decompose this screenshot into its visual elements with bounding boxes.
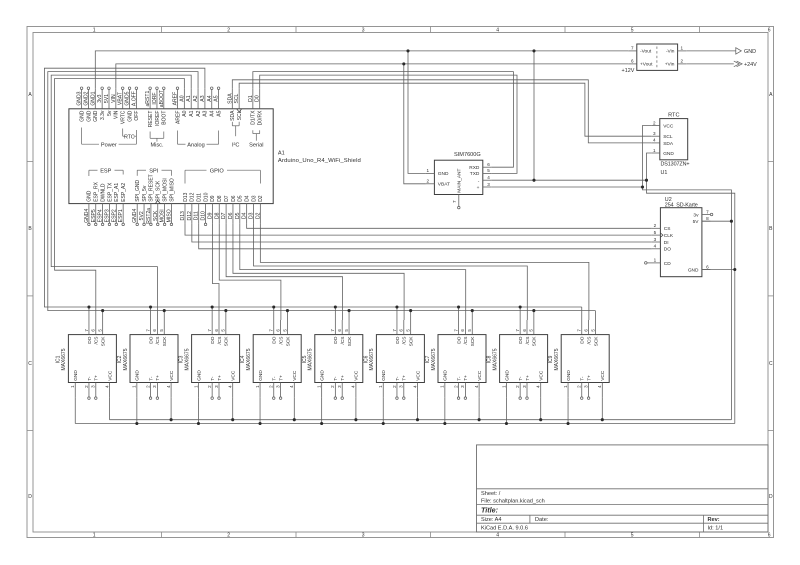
svg-text:-Vout: -Vout: [640, 49, 652, 55]
svg-text:GND4: GND4: [84, 209, 90, 223]
svg-text:/CS: /CS: [463, 337, 469, 345]
svg-text:T-: T-: [333, 376, 339, 381]
svg-text:D0/RX: D0/RX: [258, 110, 264, 125]
svg-text:C: C: [28, 361, 32, 367]
svg-text:MAX6675: MAX6675: [431, 348, 437, 370]
svg-text:/CS: /CS: [586, 337, 592, 345]
svg-text:A2: A2: [196, 110, 202, 116]
svg-text:D12: D12: [187, 211, 193, 221]
svg-text:T-: T-: [580, 376, 586, 381]
svg-text:Title:: Title:: [481, 505, 499, 514]
svg-text:3.3v: 3.3v: [100, 110, 106, 120]
svg-text:Rev:: Rev:: [708, 517, 720, 523]
svg-text:A3: A3: [203, 110, 209, 116]
svg-text:VCC: VCC: [169, 370, 175, 381]
svg-text:2: 2: [227, 533, 230, 539]
svg-text:SCL: SCL: [237, 110, 243, 120]
svg-text:D: D: [28, 494, 32, 500]
svg-text:SPI_5v: SPI_5v: [142, 185, 148, 202]
svg-text:DO: DO: [210, 336, 216, 343]
svg-text:Size: A4: Size: A4: [481, 517, 502, 523]
svg-text:8: 8: [706, 216, 709, 221]
svg-text:RTC: RTC: [124, 134, 135, 140]
svg-text:GND: GND: [93, 110, 99, 122]
svg-text:T+: T+: [463, 375, 469, 381]
svg-text:MAX6675: MAX6675: [492, 348, 498, 370]
svg-text:SCK: SCK: [100, 336, 106, 347]
svg-text:GND4: GND4: [132, 209, 138, 223]
svg-text:BOOT: BOOT: [162, 111, 168, 125]
svg-text:SCK: SCK: [593, 336, 599, 347]
svg-text:SCK: SCK: [285, 336, 291, 347]
svg-text:GND: GND: [381, 370, 387, 381]
svg-text:ESP5: ESP5: [91, 209, 97, 222]
svg-text:D2: D2: [255, 212, 261, 219]
svg-text:+12V: +12V: [622, 68, 635, 74]
svg-text:AREF: AREF: [175, 111, 181, 124]
svg-text:TXD: TXD: [470, 171, 480, 177]
svg-text:Id: 1/1: Id: 1/1: [708, 525, 724, 531]
svg-text:SPI_GND: SPI_GND: [135, 179, 141, 201]
svg-text:DO: DO: [148, 336, 154, 343]
svg-text:D12: D12: [190, 192, 196, 201]
svg-text:GND: GND: [663, 151, 674, 157]
svg-text:DO: DO: [272, 336, 278, 343]
svg-text:5: 5: [487, 168, 490, 173]
svg-text:3: 3: [654, 237, 657, 242]
svg-text:SCL: SCL: [663, 134, 673, 140]
svg-text:DI: DI: [664, 240, 669, 246]
svg-text:RTC: RTC: [668, 112, 679, 118]
svg-text:aBOOT: aBOOT: [159, 90, 165, 107]
svg-text:6: 6: [706, 264, 709, 269]
svg-text:3v: 3v: [693, 212, 699, 218]
svg-text:DO: DO: [580, 336, 586, 343]
svg-text:A.OFF: A.OFF: [131, 91, 137, 106]
svg-text:KiCad E.D.A. 9.0.6: KiCad E.D.A. 9.0.6: [481, 525, 528, 531]
svg-text:GND: GND: [86, 110, 92, 122]
svg-text:D9: D9: [207, 212, 213, 219]
svg-text:ESP_RX: ESP_RX: [94, 181, 100, 201]
svg-text:1: 1: [93, 27, 96, 33]
svg-text:2: 2: [654, 223, 657, 228]
svg-text:A2: A2: [193, 95, 199, 101]
svg-text:T+: T+: [586, 375, 592, 381]
svg-text:T+: T+: [217, 375, 223, 381]
svg-text:VCC: VCC: [354, 370, 360, 381]
svg-text:GND: GND: [73, 370, 79, 381]
svg-text:D2: D2: [258, 195, 264, 202]
svg-text:I²C: I²C: [232, 142, 239, 148]
svg-text:CLK: CLK: [664, 233, 674, 239]
svg-text:5V1: 5V1: [104, 94, 110, 103]
svg-text:7: 7: [706, 209, 709, 214]
svg-text:DO: DO: [333, 336, 339, 343]
svg-text:D3: D3: [249, 212, 255, 219]
svg-text:SDA: SDA: [230, 110, 236, 121]
svg-text:5V: 5V: [693, 219, 700, 225]
svg-text:VIN: VIN: [114, 110, 120, 119]
svg-text:MAX6675: MAX6675: [246, 348, 252, 370]
svg-text:D3: D3: [251, 195, 257, 202]
svg-text:T+: T+: [402, 375, 408, 381]
svg-text:T+: T+: [340, 375, 346, 381]
svg-text:SPI: SPI: [149, 168, 158, 174]
svg-text:/CS: /CS: [94, 337, 100, 345]
svg-text:254 SD-Karte: 254 SD-Karte: [665, 203, 698, 209]
svg-text:GND: GND: [688, 267, 699, 273]
svg-text:VCC: VCC: [539, 370, 545, 381]
svg-text:SDA: SDA: [227, 93, 233, 104]
svg-text:+24V: +24V: [744, 62, 757, 68]
svg-text:5V2: 5V2: [139, 211, 145, 220]
svg-text:6: 6: [631, 59, 634, 64]
svg-text:ESP1: ESP1: [118, 209, 124, 222]
svg-text:D8: D8: [217, 195, 223, 202]
svg-text:T+: T+: [155, 375, 161, 381]
svg-text:D5: D5: [235, 212, 241, 219]
svg-text:1: 1: [654, 258, 657, 263]
svg-text:D13: D13: [183, 192, 189, 201]
svg-text:SPI_MOSI: SPI_MOSI: [162, 178, 168, 202]
svg-text:DO: DO: [395, 336, 401, 343]
svg-text:GND: GND: [196, 370, 202, 381]
svg-text:GND: GND: [258, 370, 264, 381]
svg-text:T+: T+: [525, 375, 531, 381]
svg-text:SCK: SCK: [470, 336, 476, 347]
svg-text:+Vin: +Vin: [665, 62, 675, 68]
svg-text:T-: T-: [272, 376, 278, 381]
svg-text:SCK: SCK: [408, 336, 414, 347]
svg-text:4: 4: [653, 138, 656, 143]
svg-text:7: 7: [631, 46, 634, 51]
svg-text:SDA: SDA: [663, 141, 674, 147]
svg-text:SIM7600G: SIM7600G: [454, 152, 481, 158]
svg-text:2: 2: [653, 120, 656, 125]
svg-text:3: 3: [362, 27, 365, 33]
svg-text:T-: T-: [87, 376, 93, 381]
svg-text:T+: T+: [278, 375, 284, 381]
svg-text:GND2: GND2: [83, 91, 89, 105]
svg-text:RST2a: RST2a: [146, 208, 152, 224]
svg-text:D: D: [769, 494, 773, 500]
svg-text:5v: 5v: [107, 110, 113, 116]
svg-text:4: 4: [487, 175, 490, 180]
svg-text:MAX6675: MAX6675: [61, 348, 67, 370]
svg-text:Arduino_Uno_R4_WiFi_Shield: Arduino_Uno_R4_WiFi_Shield: [278, 158, 361, 164]
svg-text:Date:: Date:: [535, 517, 549, 523]
svg-text:GND: GND: [319, 370, 325, 381]
svg-text:GND3: GND3: [77, 91, 83, 105]
svg-text:IORF: IORF: [152, 93, 158, 105]
svg-text:/CS: /CS: [155, 337, 161, 345]
svg-text:GND: GND: [87, 190, 93, 202]
svg-text:D11: D11: [197, 193, 203, 202]
svg-text:A3: A3: [200, 95, 206, 101]
svg-text:VIN: VIN: [111, 94, 117, 103]
svg-text:1: 1: [93, 533, 96, 539]
svg-text:T-: T-: [148, 376, 154, 381]
svg-text:VCC: VCC: [231, 370, 237, 381]
svg-text:AREF: AREF: [173, 92, 179, 106]
svg-text:GND: GND: [566, 370, 572, 381]
svg-text:D6: D6: [228, 212, 234, 219]
svg-text:5: 5: [631, 533, 634, 539]
svg-text:1: 1: [653, 148, 656, 153]
svg-text:D10: D10: [201, 211, 207, 221]
svg-text:/CS: /CS: [402, 337, 408, 345]
svg-text:SPI_RESET: SPI_RESET: [149, 174, 155, 202]
svg-text:1: 1: [426, 168, 429, 173]
svg-text:D9: D9: [210, 195, 216, 202]
svg-text:D4: D4: [242, 212, 248, 219]
svg-text:ESP3: ESP3: [104, 209, 110, 222]
svg-text:Analog: Analog: [187, 142, 204, 148]
svg-text:SCK: SCK: [347, 336, 353, 347]
svg-text:3: 3: [653, 131, 656, 136]
svg-text:aRST1: aRST1: [145, 91, 151, 107]
svg-text:DO: DO: [664, 247, 671, 253]
svg-text:4: 4: [496, 533, 499, 539]
svg-text:File: schaltplan.kicad_sch: File: schaltplan.kicad_sch: [481, 499, 545, 505]
svg-text:CD: CD: [664, 261, 671, 267]
svg-text:GND: GND: [135, 370, 141, 381]
svg-text:MAIN_ANT: MAIN_ANT: [457, 168, 463, 192]
svg-text:VCC: VCC: [292, 370, 298, 381]
svg-text:D4: D4: [244, 195, 250, 202]
svg-text:T-: T-: [210, 376, 216, 381]
svg-text:1: 1: [681, 46, 684, 51]
svg-text:VCC: VCC: [415, 370, 421, 381]
svg-text:U1: U1: [661, 170, 668, 176]
svg-text:ESP_A1: ESP_A1: [114, 183, 120, 202]
svg-text:SCL: SCL: [234, 93, 240, 103]
svg-text:+Vout: +Vout: [640, 62, 653, 68]
svg-text:/CS: /CS: [525, 337, 531, 345]
svg-text:IOREF: IOREF: [155, 111, 161, 126]
svg-text:ESP_TX: ESP_TX: [107, 182, 113, 202]
svg-text:DS1307ZN+: DS1307ZN+: [661, 162, 690, 168]
svg-text:A0: A0: [182, 110, 188, 116]
svg-text:VBAT: VBAT: [118, 92, 124, 105]
svg-text:3v3: 3v3: [97, 94, 103, 102]
svg-text:SPI_SCK: SPI_SCK: [156, 180, 162, 202]
svg-text:D6: D6: [231, 195, 237, 202]
svg-text:T-: T-: [456, 376, 462, 381]
svg-text:VRTC: VRTC: [121, 110, 127, 124]
svg-text:DO: DO: [456, 336, 462, 343]
svg-text:4: 4: [654, 244, 657, 249]
svg-text:D13: D13: [180, 211, 186, 221]
svg-text:SPI_MISO: SPI_MISO: [169, 178, 175, 202]
svg-text:GND5: GND5: [125, 91, 131, 105]
svg-text:7: 7: [452, 200, 457, 203]
svg-text:D11: D11: [194, 211, 200, 220]
svg-text:VBAT: VBAT: [438, 182, 450, 188]
svg-text:A1: A1: [186, 95, 192, 101]
svg-text:ESP_A2: ESP_A2: [121, 183, 127, 202]
svg-text:DO: DO: [518, 336, 524, 343]
svg-text:2: 2: [426, 179, 429, 184]
svg-text:T-: T-: [395, 376, 401, 381]
svg-text:+: +: [477, 186, 480, 191]
svg-text:Sheet: /: Sheet: /: [481, 491, 501, 497]
svg-text:MAX6675: MAX6675: [123, 348, 129, 370]
svg-text:Serial: Serial: [249, 142, 263, 148]
svg-text:3: 3: [487, 182, 490, 187]
svg-text:GND: GND: [443, 370, 449, 381]
svg-text:DWNLD: DWNLD: [100, 183, 106, 202]
svg-text:A5: A5: [216, 110, 222, 116]
svg-text:3: 3: [362, 533, 365, 539]
svg-text:A4: A4: [207, 95, 213, 101]
svg-text:5: 5: [631, 27, 634, 33]
svg-text:6: 6: [768, 27, 771, 33]
svg-text:RESET: RESET: [148, 111, 154, 128]
svg-text:MISO: MISO: [166, 209, 172, 222]
svg-text:C: C: [769, 361, 773, 367]
svg-text:MAX6675: MAX6675: [554, 348, 560, 370]
svg-text:D7: D7: [221, 212, 227, 219]
svg-text:MAX6675: MAX6675: [184, 348, 190, 370]
svg-text:2: 2: [227, 27, 230, 33]
svg-text:/CS: /CS: [340, 337, 346, 345]
svg-text:Power: Power: [101, 142, 117, 148]
svg-text:DO: DO: [87, 336, 93, 343]
svg-text:A4: A4: [210, 110, 216, 116]
svg-text:SCK: SCK: [153, 210, 159, 221]
svg-text:VCC: VCC: [600, 370, 606, 381]
svg-text:-Vin: -Vin: [666, 49, 675, 55]
svg-text:D10: D10: [203, 192, 209, 201]
svg-text:4: 4: [496, 27, 499, 33]
svg-text:D5: D5: [238, 195, 244, 202]
svg-text:GND: GND: [79, 110, 85, 122]
svg-text:6: 6: [487, 162, 490, 167]
svg-text:D1/TX: D1/TX: [251, 110, 257, 125]
svg-text:GPIO: GPIO: [210, 168, 225, 174]
svg-text:ESP2: ESP2: [111, 209, 117, 222]
svg-text:VCC: VCC: [107, 370, 113, 381]
svg-text:MOSI: MOSI: [160, 209, 166, 222]
svg-text:6: 6: [768, 533, 771, 539]
svg-text:D1: D1: [248, 95, 254, 102]
svg-text:A1: A1: [278, 150, 285, 156]
svg-text:GND: GND: [127, 110, 133, 122]
svg-text:T-: T-: [518, 376, 524, 381]
svg-text:A1: A1: [189, 110, 195, 116]
svg-text:/CS: /CS: [217, 337, 223, 345]
svg-text:/CS: /CS: [278, 337, 284, 345]
svg-text:SCK: SCK: [162, 336, 168, 347]
svg-text:GND1: GND1: [90, 91, 96, 105]
svg-text:MAX6675: MAX6675: [308, 348, 314, 370]
svg-text:GND: GND: [438, 171, 449, 177]
svg-text:T+: T+: [94, 375, 100, 381]
svg-text:Misc.: Misc.: [150, 142, 163, 148]
svg-text:GND: GND: [504, 370, 510, 381]
svg-text:ESP: ESP: [100, 168, 111, 174]
svg-text:SCK: SCK: [532, 336, 538, 347]
svg-text:GND: GND: [744, 49, 756, 55]
svg-text:5: 5: [654, 230, 657, 235]
svg-text:D7: D7: [224, 195, 230, 202]
svg-text:SCK: SCK: [224, 336, 230, 347]
svg-text:CS: CS: [664, 226, 671, 232]
svg-text:A5: A5: [214, 95, 220, 101]
svg-text:VCC: VCC: [477, 370, 483, 381]
svg-text:RXD: RXD: [469, 165, 480, 171]
svg-text:OFF: OFF: [134, 111, 140, 121]
svg-text:ESP4: ESP4: [98, 209, 104, 222]
svg-text:D8: D8: [214, 212, 220, 219]
svg-text:D0: D0: [255, 95, 261, 102]
svg-text:VCC: VCC: [663, 123, 674, 129]
svg-text:MAX6675: MAX6675: [369, 348, 375, 370]
svg-text:2: 2: [681, 59, 684, 64]
svg-text:A0: A0: [179, 95, 185, 101]
